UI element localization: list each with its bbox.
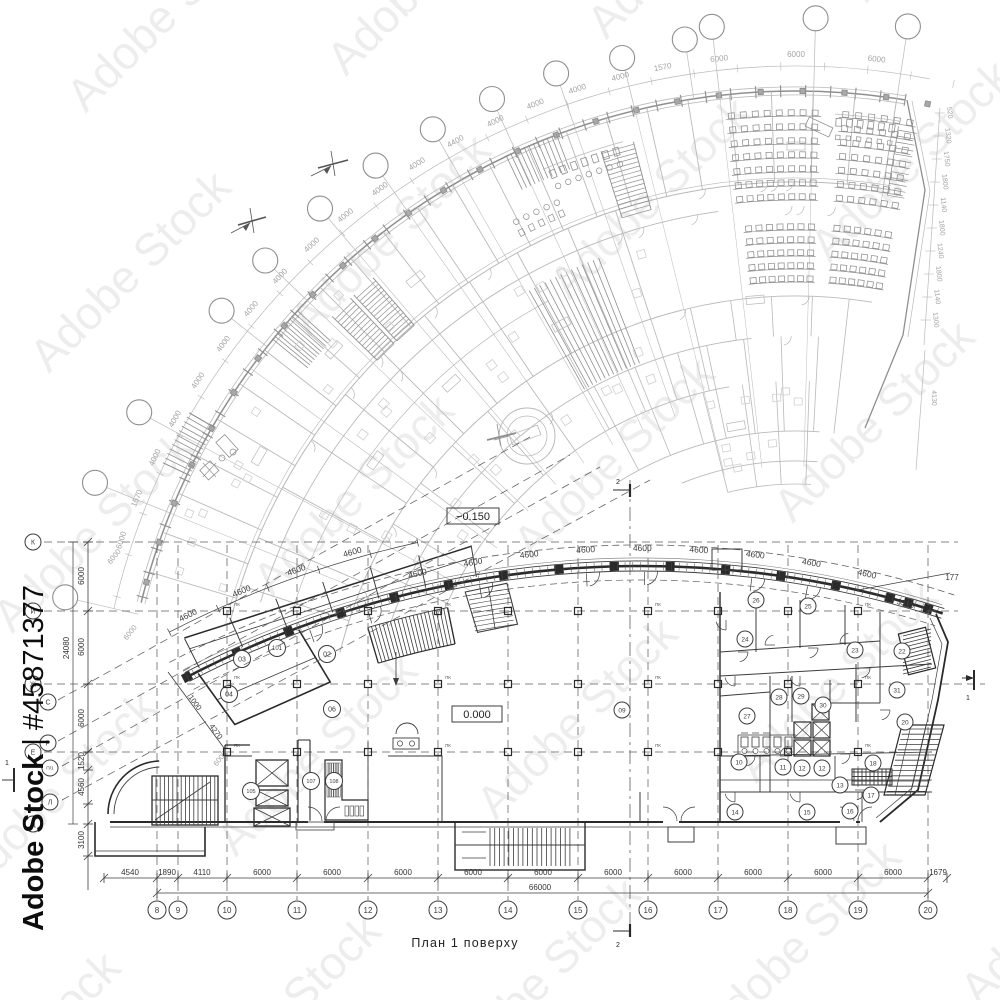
svg-text:520: 520 <box>945 107 953 119</box>
svg-text:ПК: ПК <box>445 743 451 748</box>
svg-text:1: 1 <box>5 760 9 767</box>
svg-text:2: 2 <box>616 942 620 949</box>
svg-text:20: 20 <box>924 906 933 915</box>
svg-text:26: 26 <box>752 597 760 604</box>
svg-text:6000: 6000 <box>77 709 86 727</box>
svg-text:1890: 1890 <box>158 868 176 877</box>
svg-text:ПК: ПК <box>234 675 240 680</box>
svg-text:15: 15 <box>803 809 811 816</box>
svg-text:ПК: ПК <box>445 602 451 607</box>
svg-text:6000: 6000 <box>884 868 902 877</box>
svg-text:14: 14 <box>504 906 513 915</box>
svg-text:24080: 24080 <box>62 636 71 659</box>
svg-text:11: 11 <box>293 906 302 915</box>
svg-text:11: 11 <box>780 764 787 771</box>
svg-text:6000: 6000 <box>77 638 86 656</box>
svg-text:1520: 1520 <box>77 752 86 770</box>
svg-text:10: 10 <box>223 906 232 915</box>
svg-text:ПК: ПК <box>445 675 451 680</box>
svg-text:Adobe Stock | #45871377: Adobe Stock | #45871377 <box>18 585 50 931</box>
svg-text:9: 9 <box>176 906 181 915</box>
svg-text:23: 23 <box>851 647 859 654</box>
svg-text:09: 09 <box>618 707 626 714</box>
svg-text:13: 13 <box>434 906 443 915</box>
svg-text:4600: 4600 <box>576 544 596 555</box>
svg-text:4600: 4600 <box>633 543 652 553</box>
svg-text:−0.150: −0.150 <box>456 511 490 523</box>
svg-text:12: 12 <box>364 906 373 915</box>
svg-text:03: 03 <box>238 657 246 664</box>
svg-text:27: 27 <box>743 713 751 720</box>
svg-text:ПК: ПК <box>234 602 240 607</box>
svg-text:108: 108 <box>329 779 338 785</box>
svg-text:04: 04 <box>225 692 233 699</box>
svg-text:4560: 4560 <box>77 778 86 796</box>
svg-text:30: 30 <box>819 702 827 709</box>
svg-text:101: 101 <box>272 646 283 652</box>
svg-text:6000: 6000 <box>323 868 341 877</box>
svg-text:6000: 6000 <box>674 868 692 877</box>
svg-text:ПК: ПК <box>655 602 661 607</box>
svg-text:14: 14 <box>731 809 739 816</box>
svg-text:28: 28 <box>775 694 783 701</box>
svg-text:ПК: ПК <box>865 743 871 748</box>
svg-text:31: 31 <box>893 687 901 694</box>
svg-text:12: 12 <box>798 765 806 772</box>
svg-text:18: 18 <box>784 906 793 915</box>
svg-text:6000: 6000 <box>394 868 412 877</box>
svg-text:17: 17 <box>714 906 723 915</box>
svg-text:4110: 4110 <box>193 868 211 877</box>
svg-text:17: 17 <box>867 792 875 799</box>
svg-text:8: 8 <box>155 906 160 915</box>
svg-text:План 1 поверху: План 1 поверху <box>411 936 518 950</box>
svg-text:107: 107 <box>306 779 315 785</box>
svg-text:6000: 6000 <box>744 868 762 877</box>
svg-text:6000: 6000 <box>464 868 482 877</box>
svg-text:3100: 3100 <box>77 831 86 849</box>
svg-text:22: 22 <box>898 648 906 655</box>
svg-text:1679: 1679 <box>929 868 947 877</box>
svg-text:24: 24 <box>741 636 749 643</box>
svg-text:6000: 6000 <box>253 868 271 877</box>
svg-text:ПК: ПК <box>865 602 871 607</box>
svg-text:4600: 4600 <box>689 544 709 555</box>
svg-text:6000: 6000 <box>534 868 552 877</box>
svg-text:0.000: 0.000 <box>463 709 491 721</box>
svg-text:6000: 6000 <box>814 868 832 877</box>
svg-text:16: 16 <box>846 808 854 815</box>
svg-text:20: 20 <box>901 719 909 726</box>
svg-text:4600: 4600 <box>519 548 539 560</box>
svg-text:15: 15 <box>574 906 583 915</box>
svg-text:4130: 4130 <box>930 390 938 406</box>
svg-text:18: 18 <box>869 760 877 767</box>
svg-text:66000: 66000 <box>529 883 552 892</box>
svg-text:4540: 4540 <box>121 868 139 877</box>
svg-text:06: 06 <box>328 707 336 714</box>
svg-text:02: 02 <box>323 652 331 659</box>
svg-text:6000: 6000 <box>787 50 805 59</box>
svg-text:1: 1 <box>966 695 970 702</box>
svg-text:ПК: ПК <box>655 675 661 680</box>
svg-text:6000: 6000 <box>77 567 86 585</box>
svg-text:19: 19 <box>854 906 863 915</box>
svg-text:6000: 6000 <box>604 868 622 877</box>
svg-text:12: 12 <box>818 765 826 772</box>
svg-text:13: 13 <box>836 782 844 789</box>
svg-text:29: 29 <box>797 693 805 700</box>
svg-text:105: 105 <box>246 789 255 795</box>
svg-text:25: 25 <box>804 603 812 610</box>
svg-text:2: 2 <box>616 479 620 486</box>
svg-text:177: 177 <box>945 573 959 582</box>
svg-text:10: 10 <box>735 759 743 766</box>
svg-text:ПК: ПК <box>655 743 661 748</box>
svg-text:16: 16 <box>644 906 653 915</box>
